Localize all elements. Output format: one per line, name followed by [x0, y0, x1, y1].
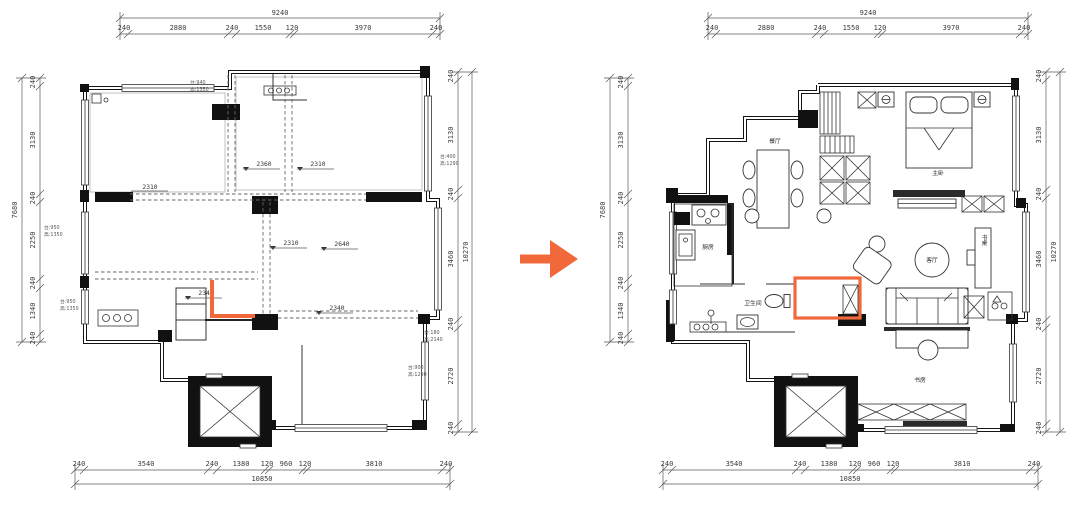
dim-chain-right-left-plan: 10270 240 3130 240 3460 240 2720 240 — [447, 68, 478, 436]
dim-label: 3460 — [1035, 251, 1043, 268]
dim-label: 240 — [814, 24, 827, 32]
window-note: 台:180 — [424, 329, 440, 336]
dim-label: 3810 — [954, 460, 971, 468]
dim-label: 240 — [206, 460, 219, 468]
dim-label: 960 — [280, 460, 293, 468]
elevator-shaft-before — [188, 374, 272, 448]
window-note: 高:2140 — [424, 336, 443, 343]
window-note: 台:400 — [440, 153, 456, 160]
window-note: 高:1290 — [440, 160, 459, 167]
dim-chain-bottom-left-plan: 10850 240 3540 240 1380 120 960 120 3810… — [71, 460, 454, 490]
dim-label: 3130 — [1035, 127, 1043, 144]
window-note: 台:950 — [60, 298, 76, 305]
dim-label: 240 — [661, 460, 674, 468]
dim-label: 3460 — [447, 251, 455, 268]
dim-chain-bottom-right-plan: 10850 240 3540 240 1380 120 960 120 3810… — [659, 460, 1042, 490]
dim-label: 240 — [118, 24, 131, 32]
dim-label: 240 — [447, 188, 455, 201]
dim-label: 3130 — [447, 127, 455, 144]
bathroom-fixtures: 卫生间 — [690, 295, 790, 333]
window-note: 高:1350 — [190, 86, 209, 93]
room-label-living: 客厅 — [926, 256, 938, 264]
dim-label: 240 — [447, 70, 455, 83]
dim-label: 240 — [447, 422, 455, 435]
dim-label: 240 — [1035, 188, 1043, 201]
plan-before: 9240 240 2880 240 1550 120 3970 240 1085… — [11, 9, 478, 490]
dim-label: 240 — [1035, 318, 1043, 331]
window-note: 高:1350 — [44, 231, 63, 238]
dim-label: 240 — [1035, 422, 1043, 435]
interior-dim: 2310 — [142, 184, 157, 191]
dim-label: 120 — [261, 460, 274, 468]
dim-chain-left-right-plan: 7680 240 3130 240 2250 240 1340 240 — [599, 74, 634, 346]
dim-label: 3810 — [366, 460, 383, 468]
dim-label: 120 — [286, 24, 299, 32]
dim-label: 240 — [29, 192, 37, 205]
dim-label: 2720 — [1035, 368, 1043, 385]
dim-total: 9240 — [860, 9, 877, 17]
dim-total: 10270 — [1050, 241, 1058, 262]
dim-label: 240 — [794, 460, 807, 468]
dim-label: 120 — [849, 460, 862, 468]
room-label-study: 书房 — [914, 376, 926, 384]
transform-arrow — [520, 240, 578, 278]
interior-dim: 2310 — [310, 161, 325, 168]
dim-chain-top-right-plan: 9240 240 2880 240 1550 120 3970 240 — [704, 9, 1032, 40]
dim-label: 240 — [73, 460, 86, 468]
dim-label: 240 — [1035, 70, 1043, 83]
living-room-furniture: 客厅 书桌 — [851, 228, 1012, 331]
window-note: 高:1290 — [408, 371, 427, 378]
study-furniture: 书房 — [858, 330, 968, 426]
interior-dim: 2310 — [283, 240, 298, 247]
room-label-kitchen: 厨房 — [702, 243, 714, 251]
dim-total: 9240 — [272, 9, 289, 17]
dim-label: 3130 — [29, 132, 37, 149]
dining-furniture: 餐厅 — [743, 137, 831, 228]
dim-label: 240 — [29, 332, 37, 345]
dim-label: 1550 — [843, 24, 860, 32]
dim-label: 240 — [447, 318, 455, 331]
floorplan-comparison: 9240 240 2880 240 1550 120 3970 240 1085… — [0, 0, 1080, 509]
dim-label: 1550 — [255, 24, 272, 32]
dim-label: 3540 — [138, 460, 155, 468]
window-note: 台:950 — [44, 224, 60, 231]
dim-label: 120 — [299, 460, 312, 468]
dim-label: 3130 — [617, 132, 625, 149]
window-note: 台:940 — [190, 79, 206, 86]
dim-label: 120 — [874, 24, 887, 32]
highlight-new-wall-before — [212, 282, 253, 316]
window-note: 台:900 — [408, 364, 424, 371]
interior-dim: 2340 — [329, 305, 344, 312]
dim-label: 240 — [617, 277, 625, 290]
dim-total: 7680 — [599, 202, 607, 219]
arrow-head-icon — [550, 240, 578, 278]
dim-chain-top-left-plan: 9240 240 2880 240 1550 120 3970 240 — [116, 9, 444, 40]
window-note: 高:1350 — [60, 305, 79, 312]
master-bedroom-furniture: 主卧 — [858, 92, 1004, 212]
dim-label: 240 — [430, 24, 443, 32]
dim-label: 240 — [29, 277, 37, 290]
dim-label: 1340 — [29, 303, 37, 320]
kitchen-fixtures: 厨房 — [674, 204, 732, 286]
plan-after: 9240 240 2880 240 1550 120 3970 240 1085… — [599, 9, 1066, 490]
dim-label: 240 — [617, 76, 625, 89]
interior-dim: 2640 — [334, 241, 349, 248]
highlight-rect — [795, 278, 860, 318]
dim-label: 240 — [1028, 460, 1041, 468]
window-notes-before: 台:940 高:1350 台:950 高:1350 台:950 高:1350 台… — [44, 79, 459, 378]
interior-dim: 2360 — [256, 161, 271, 168]
elevator-shaft-after — [774, 374, 858, 448]
dim-total: 10850 — [839, 475, 860, 483]
dim-label: 3970 — [355, 24, 372, 32]
dim-label: 240 — [29, 76, 37, 89]
dim-label: 2880 — [170, 24, 187, 32]
dim-label: 240 — [617, 192, 625, 205]
dim-total: 7680 — [11, 202, 19, 219]
dim-label: 2880 — [758, 24, 775, 32]
room-label-dining: 餐厅 — [769, 137, 781, 145]
room-label-bath: 卫生间 — [744, 299, 762, 307]
highlight-cabinet-after — [795, 278, 860, 318]
dim-label: 240 — [617, 332, 625, 345]
dim-label: 960 — [868, 460, 881, 468]
room-label-master: 主卧 — [932, 169, 944, 177]
dim-chain-right-right-plan: 10270 240 3130 240 3460 240 2720 240 — [1035, 68, 1066, 436]
dim-label: 120 — [887, 460, 900, 468]
dim-label: 1380 — [233, 460, 250, 468]
hall-cabinets — [820, 92, 870, 204]
dim-label: 240 — [226, 24, 239, 32]
dim-total: 10850 — [251, 475, 272, 483]
dim-label: 1380 — [821, 460, 838, 468]
dim-chain-left-left-plan: 7680 240 3130 240 2250 240 1340 240 — [11, 74, 46, 346]
dim-label: 240 — [440, 460, 453, 468]
dim-label: 240 — [706, 24, 719, 32]
dim-label: 2250 — [29, 232, 37, 249]
dim-label: 2250 — [617, 232, 625, 249]
dim-label: 2720 — [447, 368, 455, 385]
interior-dims-before: 2360 2310 2310 2310 2640 2340 2340 — [131, 161, 358, 315]
dim-label: 1340 — [617, 303, 625, 320]
walls-before — [80, 66, 438, 430]
dim-label: 3540 — [726, 460, 743, 468]
dim-total: 10270 — [462, 241, 470, 262]
room-label-desk: 书桌 — [980, 233, 987, 247]
dim-label: 3970 — [943, 24, 960, 32]
floorplan-canvas: 9240 240 2880 240 1550 120 3970 240 1085… — [0, 0, 1080, 509]
dim-label: 240 — [1018, 24, 1031, 32]
